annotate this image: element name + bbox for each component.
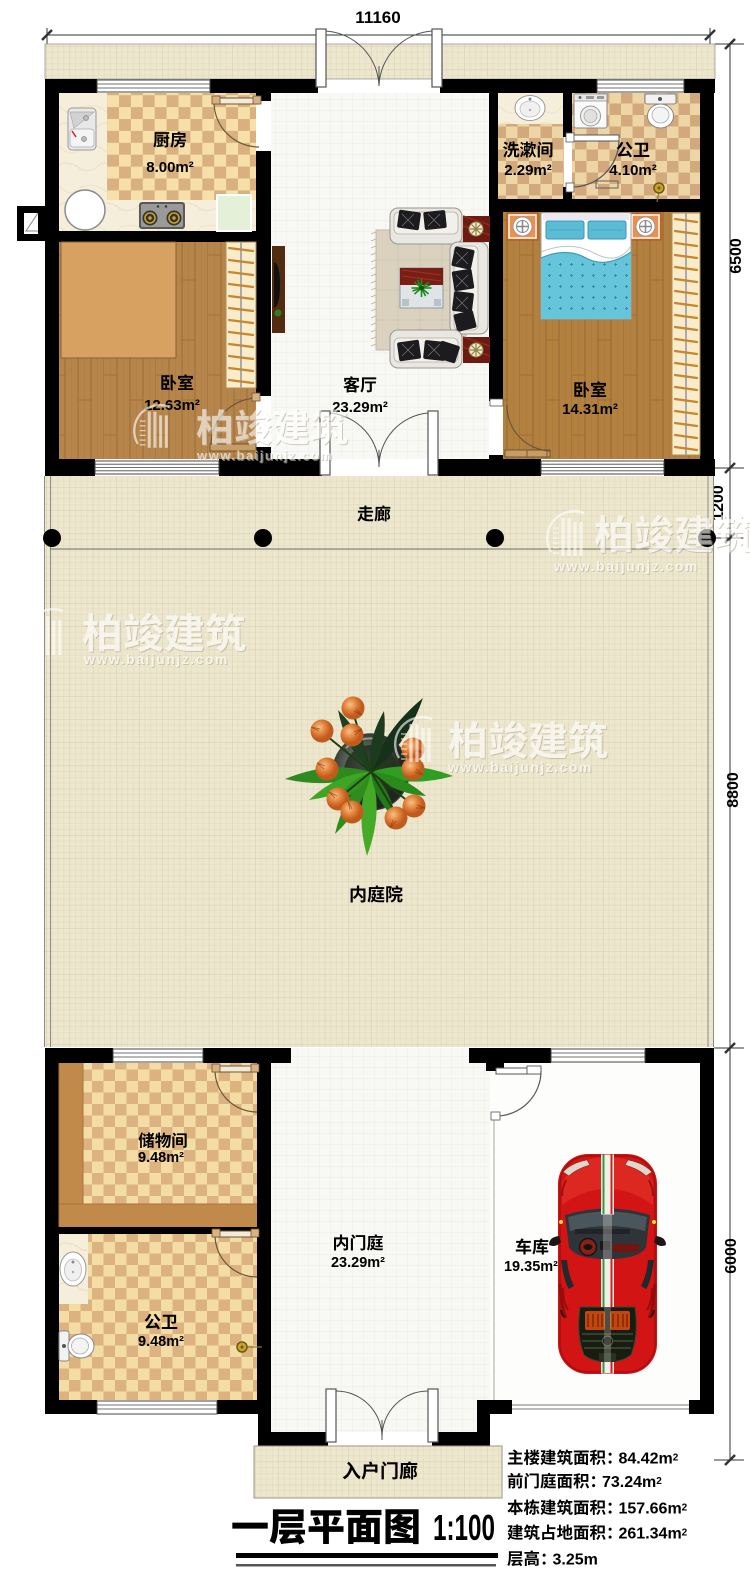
svg-text:2.29m²: 2.29m²	[504, 162, 552, 179]
svg-text:6500: 6500	[728, 238, 745, 274]
svg-text:www.baijunjz.com: www.baijunjz.com	[553, 558, 699, 574]
svg-text:19.35m²: 19.35m²	[504, 1259, 558, 1275]
svg-text:8.00m²: 8.00m²	[146, 159, 194, 176]
svg-text:11160: 11160	[355, 8, 400, 27]
svg-text:1:100: 1:100	[433, 1507, 495, 1548]
svg-text:6000: 6000	[723, 1238, 740, 1274]
svg-text:14.31m²: 14.31m²	[562, 401, 618, 418]
svg-text:261.34m2: 261.34m2	[619, 1526, 688, 1543]
svg-text:9.48m²: 9.48m²	[138, 1334, 184, 1350]
svg-text:www.baijunjz.com: www.baijunjz.com	[83, 651, 229, 667]
svg-text:www.baijunjz.com: www.baijunjz.com	[196, 448, 333, 463]
svg-text:www.baijunjz.com: www.baijunjz.com	[447, 759, 593, 775]
svg-text:23.29m²: 23.29m²	[331, 1255, 385, 1271]
svg-text:73.24m2: 73.24m2	[602, 1474, 662, 1491]
svg-text:84.42m2: 84.42m2	[619, 1451, 679, 1468]
svg-text:4.10m²: 4.10m²	[609, 162, 657, 179]
svg-text:8800: 8800	[725, 772, 742, 808]
svg-text:9.48m²: 9.48m²	[138, 1150, 184, 1166]
svg-text:157.66m2: 157.66m2	[619, 1501, 688, 1518]
svg-text:3.25m: 3.25m	[553, 1552, 598, 1569]
